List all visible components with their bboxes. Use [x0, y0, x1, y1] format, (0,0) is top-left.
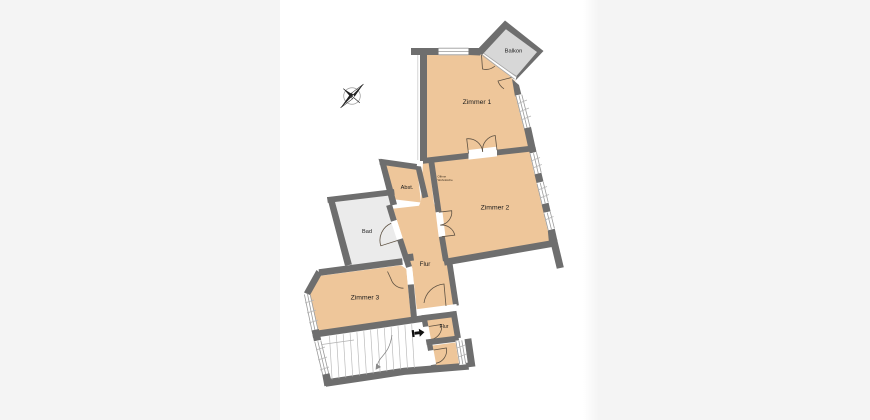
svg-text:Wohnküche: Wohnküche — [438, 178, 454, 182]
svg-text:Zimmer 2: Zimmer 2 — [481, 205, 510, 212]
svg-text:Balkon: Balkon — [505, 49, 523, 55]
svg-text:Zimmer 3: Zimmer 3 — [351, 295, 380, 302]
svg-text:Abst.: Abst. — [401, 185, 414, 191]
svg-text:Bad: Bad — [362, 229, 372, 235]
svg-text:Zimmer 1: Zimmer 1 — [463, 99, 492, 106]
svg-text:Flur: Flur — [440, 324, 449, 330]
svg-text:Flur: Flur — [420, 261, 431, 268]
